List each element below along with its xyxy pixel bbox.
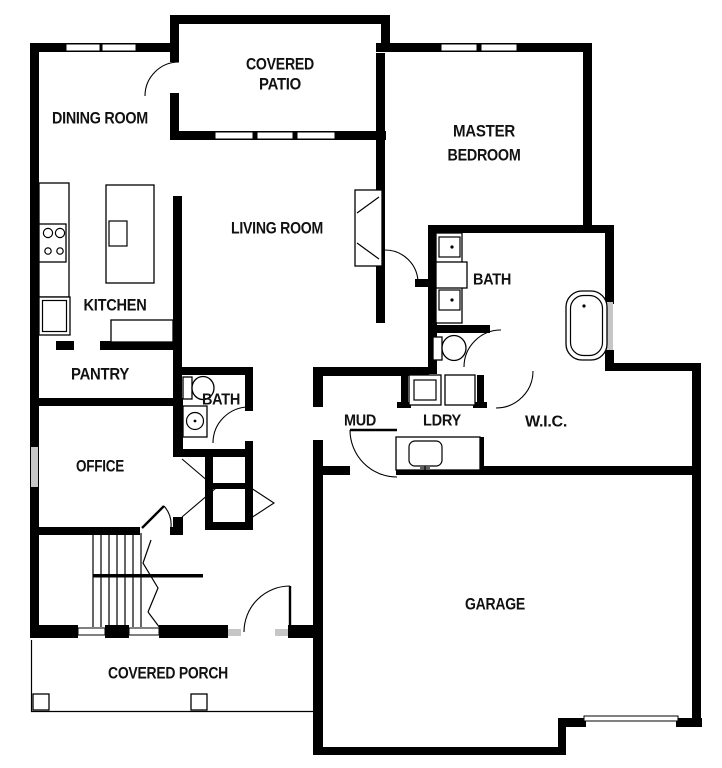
room-label-covered-patio-2: PATIO (259, 75, 301, 94)
wall (173, 406, 183, 457)
cooktop-icon (39, 224, 66, 262)
closet-doors (251, 488, 274, 518)
front-door (244, 586, 290, 632)
garage-door (584, 716, 678, 721)
floor-plan: COVERED PATIO DINING ROOM MASTER BEDROOM… (0, 0, 722, 768)
washer-icon (409, 375, 441, 405)
wall (477, 375, 484, 405)
kitchen-island (106, 185, 154, 283)
window (257, 132, 293, 139)
wall (159, 625, 228, 638)
dryer-icon (445, 375, 475, 405)
bathtub-icon (566, 291, 607, 360)
room-label-ldry: LDRY (423, 413, 462, 430)
wall (56, 341, 74, 350)
wall (313, 440, 323, 750)
patio-door-arc (145, 62, 179, 96)
media-niche (355, 190, 382, 266)
wall (175, 367, 253, 375)
window (102, 44, 136, 51)
wic-door-arc (496, 371, 533, 408)
room-label-wic: W.I.C. (525, 414, 567, 431)
window (78, 628, 105, 635)
wall (313, 747, 564, 755)
room-label-pantry: PANTRY (71, 365, 130, 384)
wall (30, 398, 183, 406)
wall (583, 43, 592, 233)
wall (245, 367, 253, 411)
room-label-hall-bath: BATH (202, 392, 240, 409)
wall (428, 225, 614, 233)
window (31, 447, 38, 487)
toilet-icon (433, 336, 466, 361)
refrigerator-icon (39, 297, 70, 335)
door-sill (275, 629, 288, 636)
wall (30, 43, 39, 633)
room-labels: COVERED PATIO DINING ROOM MASTER BEDROOM… (52, 55, 567, 683)
stairs (93, 533, 203, 628)
porch-post (33, 694, 49, 710)
master-door-arc (385, 250, 418, 283)
wall (30, 527, 140, 535)
master-vanity (436, 233, 467, 323)
wall (170, 15, 390, 24)
wall (205, 522, 253, 530)
wall (30, 625, 78, 638)
window (441, 44, 477, 51)
room-label-garage: GARAGE (465, 595, 525, 614)
wall (428, 325, 490, 333)
wall (676, 718, 702, 727)
wall (288, 625, 323, 638)
porch-post (191, 694, 207, 710)
room-label-master-bath: BATH (473, 272, 511, 289)
toilet-room-door-arc (464, 330, 501, 367)
room-label-office: OFFICE (76, 457, 124, 476)
window (297, 132, 335, 139)
room-label-master-bedroom: MASTER (453, 122, 515, 141)
wall (692, 363, 701, 727)
wall (605, 363, 701, 371)
wall (170, 527, 183, 535)
laundry-sink-icon (396, 437, 480, 471)
under-stair-door (142, 506, 171, 528)
room-label-covered-porch: COVERED PORCH (108, 664, 228, 683)
room-label-master-bedroom-2: BEDROOM (448, 146, 521, 165)
wall (605, 225, 614, 304)
room-label-covered-patio: COVERED (246, 55, 314, 74)
room-label-dining-room: DINING ROOM (52, 109, 148, 128)
window (215, 132, 253, 139)
wall (183, 449, 253, 457)
room-label-kitchen: KITCHEN (84, 296, 147, 315)
wall (313, 367, 323, 407)
window (66, 44, 100, 51)
door-sill (228, 629, 241, 636)
mud-door (350, 430, 397, 477)
sink-icon (183, 406, 207, 437)
bar-counter (111, 320, 173, 342)
hall-bath-door-arc (213, 407, 249, 443)
wall (205, 483, 253, 489)
wall (401, 375, 408, 405)
wall (313, 466, 350, 475)
wall (205, 449, 213, 530)
window (481, 44, 517, 51)
window (129, 628, 159, 635)
wall (376, 53, 385, 323)
room-label-mud: MUD (344, 413, 376, 430)
room-label-living-room: LIVING ROOM (231, 219, 323, 238)
